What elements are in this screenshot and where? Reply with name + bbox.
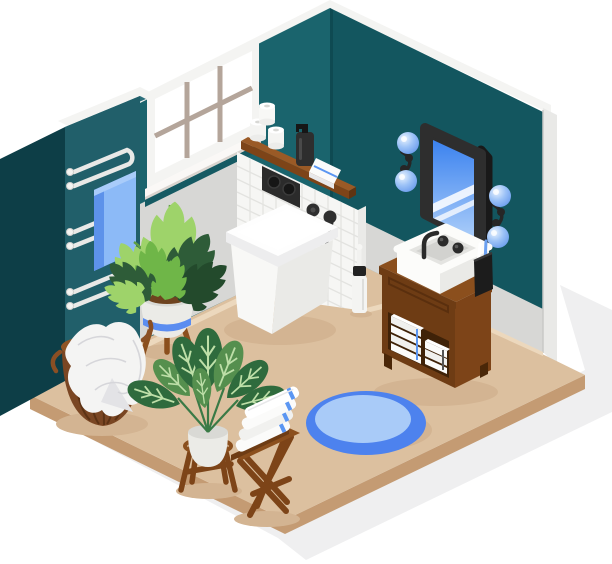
sconce-globe [489, 185, 511, 207]
paper-roll [259, 103, 275, 126]
bathroom-isometric-illustration [0, 0, 612, 564]
sconce-globe [397, 132, 419, 154]
sconce-globe [395, 170, 417, 192]
paper-roll [268, 127, 284, 150]
faucet-handle [438, 236, 449, 247]
toilet [224, 204, 338, 345]
illustration-stage [0, 0, 612, 564]
right-wall-edge [543, 108, 557, 366]
faucet-handle [453, 243, 464, 254]
rug-inner [315, 395, 411, 443]
